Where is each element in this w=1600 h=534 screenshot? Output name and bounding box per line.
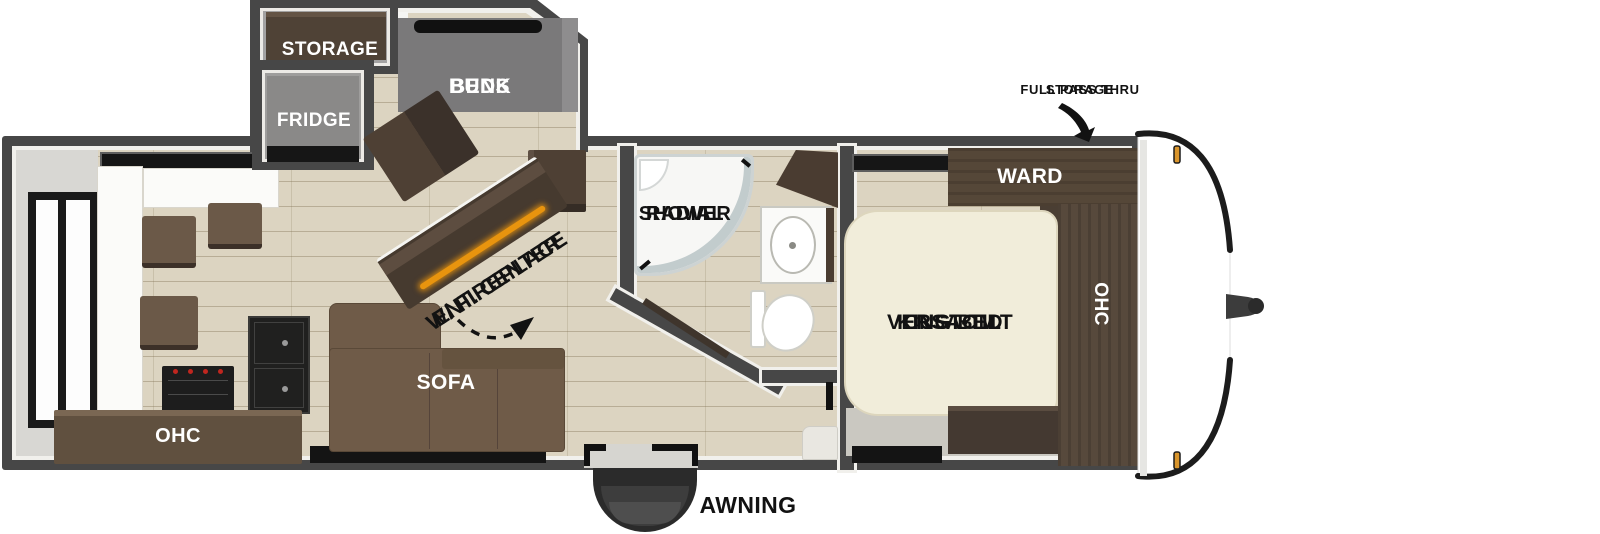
bedroom-ohc-label: OHC xyxy=(1088,274,1112,334)
fridge-label: FRIDGE xyxy=(268,110,360,132)
bunk-label-line2: BEDS xyxy=(450,76,510,99)
sofa xyxy=(329,348,565,452)
door-sill xyxy=(692,444,698,466)
bar-stool xyxy=(142,216,196,268)
vanity-sink xyxy=(760,206,832,284)
kitchen-counter-top xyxy=(143,168,279,208)
cabinet-door xyxy=(254,322,304,364)
bedroom-ohc-band xyxy=(1058,204,1142,466)
shower-head xyxy=(639,159,669,191)
step xyxy=(609,502,681,524)
sink-drain xyxy=(789,242,796,249)
hitch-tongue xyxy=(1226,294,1262,319)
wardrobe-label: WARD xyxy=(993,165,1067,189)
pass-thru-label: FULL PASS THRU STORAGE xyxy=(1004,74,1156,106)
bar-stool xyxy=(208,203,262,249)
range-knob xyxy=(173,369,178,374)
awning-label: AWNING xyxy=(690,492,806,518)
entry-steps xyxy=(593,468,697,532)
bunk-side-wall xyxy=(562,18,578,112)
kitchen-counter-vertical xyxy=(97,166,143,414)
king-bed-label: VERSA-TILT CUSTOM KING BED xyxy=(855,284,1045,362)
range-knob xyxy=(188,369,193,374)
cabinet-knob xyxy=(282,386,288,392)
shower-corner-mark xyxy=(741,158,751,167)
front-cap xyxy=(1138,133,1230,476)
bar-stool xyxy=(140,296,198,350)
window-pane xyxy=(36,200,58,420)
range-cooktop xyxy=(162,366,234,414)
sofa-label: SOFA xyxy=(398,372,494,394)
marker-light-bottom xyxy=(1174,452,1180,469)
rear-window xyxy=(28,192,98,428)
front-cap-trim-bottom xyxy=(1138,360,1230,477)
shower-corner-mark xyxy=(639,260,651,271)
kitchen-ohc-label: OHC xyxy=(130,426,226,448)
fridge-front xyxy=(267,146,359,162)
radial-shower-label: RADIAL SHOWER xyxy=(626,194,744,236)
bedroom-bottom-window xyxy=(852,446,942,463)
bedroom-top-window xyxy=(852,154,952,172)
sofa-backrest xyxy=(442,349,564,369)
wall-mount xyxy=(826,382,833,410)
bed-foot-dresser xyxy=(948,406,1058,454)
storage-label: STORAGE xyxy=(272,39,388,61)
range-grate xyxy=(168,380,228,381)
range-knob xyxy=(203,369,208,374)
range-grate xyxy=(168,394,228,395)
cushion-seam xyxy=(429,353,430,449)
front-cap-trim-top xyxy=(1138,133,1230,250)
pantry-cabinet xyxy=(248,316,310,414)
range-knob xyxy=(218,369,223,374)
cabinet-knob xyxy=(282,340,288,346)
bunk-led-light xyxy=(414,20,542,33)
hitch-coupler xyxy=(1248,298,1264,314)
marker-light-top xyxy=(1174,146,1180,163)
cabinet-door xyxy=(254,368,304,408)
floorplan-diagram: OHC SOFA AWNING ENT. CENTER W/ FIREPLACE… xyxy=(0,0,1600,534)
pass-thru-label-line2: STORAGE xyxy=(1046,83,1114,97)
window-pane xyxy=(66,200,90,420)
bunk-beds-label: BUNK BEDS xyxy=(430,64,530,110)
bed-step-bench xyxy=(802,426,838,460)
bed-label-line3: KING BED xyxy=(897,312,1003,335)
door-sill xyxy=(584,444,590,466)
shower-label-line2: SHOWER xyxy=(639,204,731,226)
vanity-side xyxy=(826,208,834,282)
